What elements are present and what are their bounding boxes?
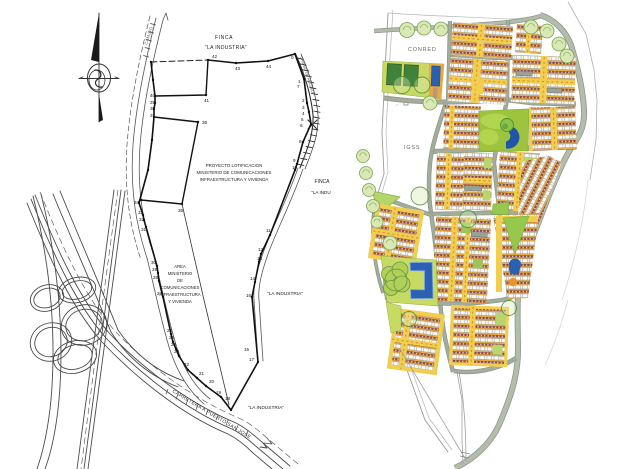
svg-text:MINISTERIO DE COMUNICACIONES: MINISTERIO DE COMUNICACIONES	[197, 170, 272, 175]
svg-text:PROYECTO LOTIFICACION: PROYECTO LOTIFICACION	[206, 163, 263, 168]
svg-text:8: 8	[299, 139, 302, 144]
svg-text:7: 7	[297, 84, 300, 89]
svg-text:33: 33	[138, 210, 144, 215]
svg-text:“LA INDU: “LA INDU	[311, 190, 330, 195]
svg-text:15: 15	[244, 347, 250, 352]
svg-text:3: 3	[302, 105, 305, 110]
svg-text:16: 16	[246, 293, 252, 298]
svg-text:0: 0	[291, 55, 294, 60]
svg-text:11: 11	[266, 228, 271, 233]
svg-text:28: 28	[153, 275, 159, 280]
svg-text:19: 19	[216, 390, 222, 395]
svg-text:34: 34	[134, 200, 140, 205]
svg-text:“LA INDUSTRIA”: “LA INDUSTRIA”	[267, 291, 303, 297]
svg-text:“LA INDUSTRIA”: “LA INDUSTRIA”	[248, 405, 284, 411]
svg-text:12: 12	[258, 247, 264, 252]
svg-text:22: 22	[184, 362, 190, 367]
svg-text:13: 13	[257, 256, 263, 261]
svg-text:26: 26	[167, 328, 173, 333]
svg-text:DE: DE	[177, 278, 183, 283]
svg-text:42: 42	[212, 54, 218, 59]
svg-text:2: 2	[302, 98, 305, 103]
svg-text:37: 37	[150, 113, 156, 118]
svg-text:“LA INDUSTRIA”: “LA INDUSTRIA”	[205, 45, 247, 51]
svg-text:31: 31	[141, 227, 147, 232]
svg-text:10: 10	[292, 165, 298, 170]
svg-text:23: 23	[174, 349, 180, 354]
svg-text:40: 40	[150, 93, 156, 98]
svg-text:Y VIVIENDA: Y VIVIENDA	[168, 299, 192, 304]
svg-text:41: 41	[204, 98, 210, 103]
svg-text:FINCA: FINCA	[315, 179, 331, 185]
svg-text:4: 4	[302, 111, 305, 116]
svg-text:INFRAESTRUCTURA Y VIVIENDA: INFRAESTRUCTURA Y VIVIENDA	[200, 177, 269, 182]
svg-text:21: 21	[199, 371, 205, 376]
svg-text:32: 32	[139, 217, 145, 222]
svg-text:IGSS: IGSS	[404, 145, 420, 151]
svg-text:25: 25	[169, 335, 175, 340]
svg-text:MINISTERIO: MINISTERIO	[168, 271, 193, 276]
svg-text:FINCA: FINCA	[215, 35, 233, 41]
svg-text:35: 35	[178, 208, 184, 213]
svg-text:INFRAESTRUCTURA: INFRAESTRUCTURA	[159, 292, 200, 297]
svg-text:20: 20	[209, 379, 215, 384]
svg-text:9: 9	[293, 158, 296, 163]
svg-text:36: 36	[202, 120, 208, 125]
svg-text:14: 14	[250, 276, 256, 281]
svg-text:COMUNICACIONES: COMUNICACIONES	[161, 285, 200, 290]
svg-text:30: 30	[151, 260, 157, 265]
svg-text:18: 18	[225, 396, 231, 401]
svg-text:CONRED: CONRED	[408, 47, 437, 53]
svg-text:24: 24	[171, 342, 177, 347]
svg-text:43: 43	[235, 66, 241, 71]
svg-text:38: 38	[150, 106, 156, 111]
svg-text:39: 39	[150, 100, 156, 105]
svg-text:6: 6	[300, 123, 303, 128]
svg-text:17: 17	[249, 357, 255, 362]
svg-text:5: 5	[301, 117, 304, 122]
svg-text:AREA: AREA	[174, 264, 186, 269]
svg-text:29: 29	[152, 267, 158, 272]
svg-text:44: 44	[266, 64, 272, 69]
